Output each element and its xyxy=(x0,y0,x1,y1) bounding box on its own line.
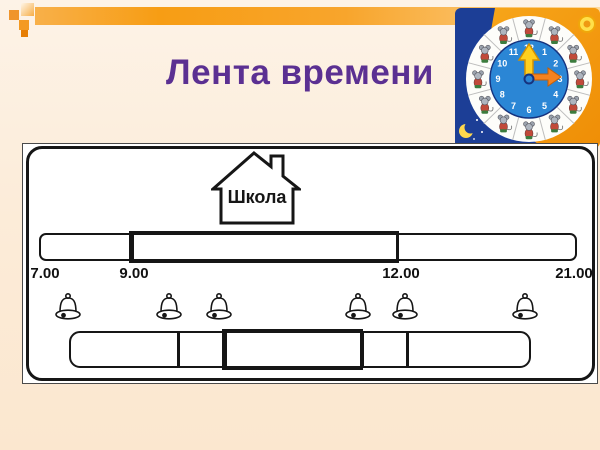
clock-number: 2 xyxy=(553,59,558,69)
bell-icon xyxy=(342,292,374,322)
bell-icon xyxy=(509,292,541,322)
clock-number: 11 xyxy=(509,47,519,57)
sun-icon xyxy=(579,16,595,32)
schedule-divider xyxy=(406,331,409,368)
bell-icon xyxy=(52,292,84,322)
clock-number: 5 xyxy=(542,101,547,111)
slide-title: Лента времени xyxy=(145,50,455,96)
clock-number: 9 xyxy=(495,74,500,84)
decor-square xyxy=(19,20,29,30)
time-label: 9.00 xyxy=(104,265,164,282)
bell-icon xyxy=(389,292,421,322)
clock-number: 1 xyxy=(542,47,547,57)
decor-square xyxy=(9,10,19,20)
time-label: 21.00 xyxy=(544,265,600,282)
clock-number: 4 xyxy=(553,90,558,100)
bell-icon xyxy=(153,292,185,322)
decor-square xyxy=(21,30,28,37)
house-label: Школа xyxy=(228,187,288,207)
clock-number: 10 xyxy=(497,59,507,69)
school-hours-segment xyxy=(129,231,399,263)
clock-number: 8 xyxy=(500,90,505,100)
time-label: 12.00 xyxy=(371,265,431,282)
schedule-middle-segment xyxy=(222,329,363,370)
clock-number: 6 xyxy=(526,105,531,115)
clock-graphic: 12 1 2 3 4 5 6 7 8 9 10 11 xyxy=(455,8,600,148)
timeline-panel: Школа 7.00 9.00 12.00 21.00 xyxy=(22,143,598,384)
clock-illustration: 12 1 2 3 4 5 6 7 8 9 10 11 xyxy=(455,8,600,148)
bell-icon xyxy=(203,292,235,322)
school-house-icon: Школа xyxy=(211,149,301,229)
clock-number: 7 xyxy=(511,101,516,111)
decor-square xyxy=(21,3,34,16)
time-label: 7.00 xyxy=(15,265,75,282)
clock-center xyxy=(525,75,534,84)
slide: Лента времени xyxy=(0,0,600,450)
schedule-divider xyxy=(177,331,180,368)
